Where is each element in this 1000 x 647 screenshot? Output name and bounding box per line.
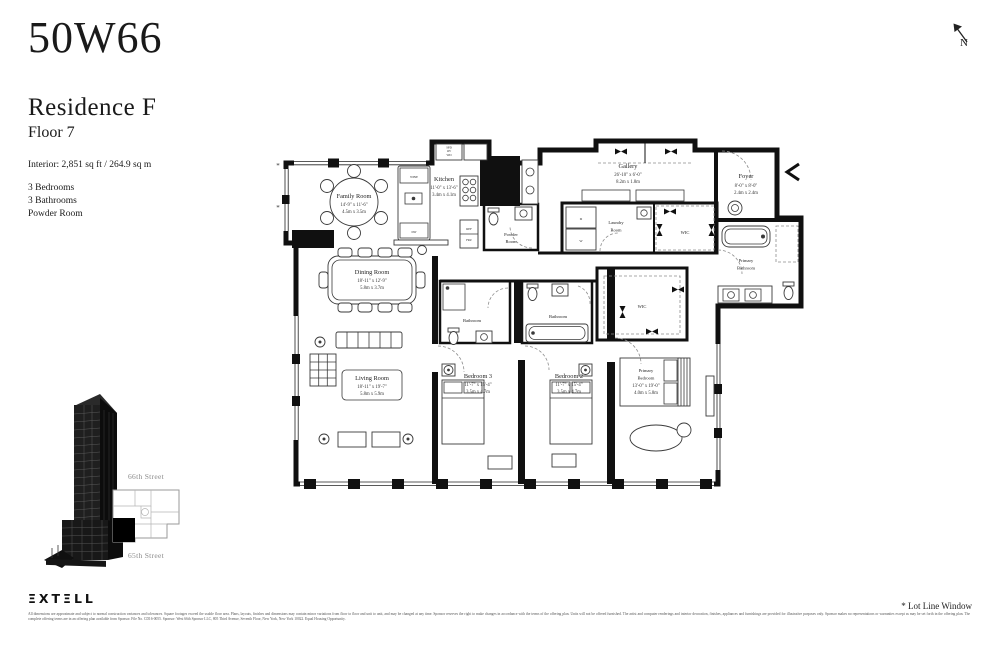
bedroom3-dims-imperial: 11'-7" x 15'-4" <box>464 383 491 388</box>
primary-bathroom-fixtures <box>718 226 798 303</box>
program-list: 3 Bedrooms 3 Bathrooms Powder Room <box>28 182 83 221</box>
primary-dims-metric: 4.0m x 5.8m <box>634 391 658 396</box>
family-dims-metric: 4.5m x 3.5m <box>342 210 366 215</box>
primary-bedroom-furniture <box>615 338 714 451</box>
label-laundry-room: Laundry <box>608 220 624 225</box>
label-bedroom3: Bedroom 3 <box>464 373 492 380</box>
gallery-dims-imperial: 26'-10" x 6'-0" <box>614 173 641 178</box>
label-laundry-room-2: Room <box>610 228 622 233</box>
wall-ovens <box>522 160 538 204</box>
kitchen-dims-metric: 3.4m x 4.1m <box>432 193 456 198</box>
bedroom3-furniture <box>438 346 512 469</box>
entry-arrow-icon <box>787 164 799 180</box>
bedroom3-dims-metric: 3.5m x 4.7m <box>466 390 490 395</box>
label-primary-bathroom-2: Bathroom <box>737 266 755 271</box>
label-gallery: Gallery <box>619 163 639 170</box>
bathroom2-fixtures <box>526 284 590 342</box>
foyer-dims-imperial: 8'-0" x 8'-0" <box>735 184 758 189</box>
label-bathroom3: Bathroom <box>463 318 481 323</box>
extell-logo: ΞXTΞLL <box>28 591 96 606</box>
dining-dims-imperial: 18'-11" x 12'-9" <box>357 279 387 284</box>
stack-line3: WD <box>447 153 453 157</box>
program-bedrooms: 3 Bedrooms <box>28 182 83 195</box>
family-dims-imperial: 14'-9" x 11'-6" <box>340 203 367 208</box>
floorplan-sheet: 50W66 Residence F Floor 7 Interior: 2,85… <box>0 0 1000 647</box>
program-bathrooms: 3 Bathrooms <box>28 195 83 208</box>
wine-fridge-label: WINE <box>410 175 418 179</box>
street-label-top: 66th Street <box>98 472 194 481</box>
label-foyer: Foyer <box>739 173 755 180</box>
label-powder-room: Powder <box>504 232 518 237</box>
north-label: N <box>960 37 968 49</box>
lot-line-marker-2: * <box>276 204 280 212</box>
bedroom2-furniture <box>525 346 592 467</box>
label-dining-room: Dining Room <box>355 269 390 276</box>
lot-line-marker-1: * <box>276 162 280 170</box>
wic-hall-fixtures <box>656 206 715 250</box>
foyer-fixtures <box>722 151 751 215</box>
label-kitchen: Kitchen <box>434 176 455 183</box>
street-label-bottom: 65th Street <box>98 551 194 560</box>
foyer-dims-metric: 2.4m x 2.4m <box>734 191 758 196</box>
label-primary-bedroom: Primary <box>639 368 654 373</box>
label-wic-hall: WIC <box>681 230 690 235</box>
building-title: 50W66 <box>28 16 163 60</box>
kitchen-dims-imperial: 11'-0" x 13'-6" <box>430 186 457 191</box>
program-powder: Powder Room <box>28 208 83 221</box>
ref-label: REF <box>466 227 472 231</box>
family-room-furniture <box>321 165 388 240</box>
living-dims-imperial: 18'-11" x 19'-7" <box>357 385 387 390</box>
dishwasher-label: DW <box>412 230 417 234</box>
residence-location-marker <box>113 518 135 542</box>
living-dims-metric: 5.8m x 5.9m <box>360 392 384 397</box>
label-primary-bathroom: Primary <box>739 258 754 263</box>
label-family-room: Family Room <box>337 193 372 200</box>
label-primary-bedroom-2: Bedroom <box>638 376 655 381</box>
floor-plan: WINE DW REF FRZ SPD OV WD <box>272 138 817 506</box>
label-powder-room-2: Room <box>505 239 517 244</box>
label-bedroom2: Bedroom 2 <box>555 373 583 380</box>
north-arrow-icon: N <box>938 14 986 62</box>
legal-disclaimer: All dimensions are approximate and subje… <box>28 612 970 621</box>
residence-title: Residence F <box>28 94 156 122</box>
label-living-room: Living Room <box>355 375 389 382</box>
bedroom2-dims-metric: 3.5m x 4.7m <box>557 390 581 395</box>
frz-label: FRZ <box>466 238 472 242</box>
label-wic-primary: WIC <box>638 304 647 309</box>
floor-label: Floor 7 <box>28 124 75 142</box>
key-plan: 66th Street 65th Street <box>98 472 194 572</box>
dining-dims-metric: 5.8m x 3.7m <box>360 286 384 291</box>
key-plan-map <box>105 484 187 548</box>
bedroom2-dims-imperial: 11'-7" x 15'-4" <box>555 383 582 388</box>
bathroom3-fixtures <box>443 284 508 345</box>
gallery-dims-metric: 8.2m x 1.8m <box>616 180 640 185</box>
laundry-fixtures <box>566 207 651 251</box>
interior-area: Interior: 2,851 sq ft / 264.9 sq m <box>28 160 151 170</box>
label-bathroom2: Bathroom <box>549 314 567 319</box>
primary-dims-imperial: 13'-0" x 19'-0" <box>632 384 659 389</box>
lot-line-window-note: * Lot Line Window <box>846 601 972 611</box>
